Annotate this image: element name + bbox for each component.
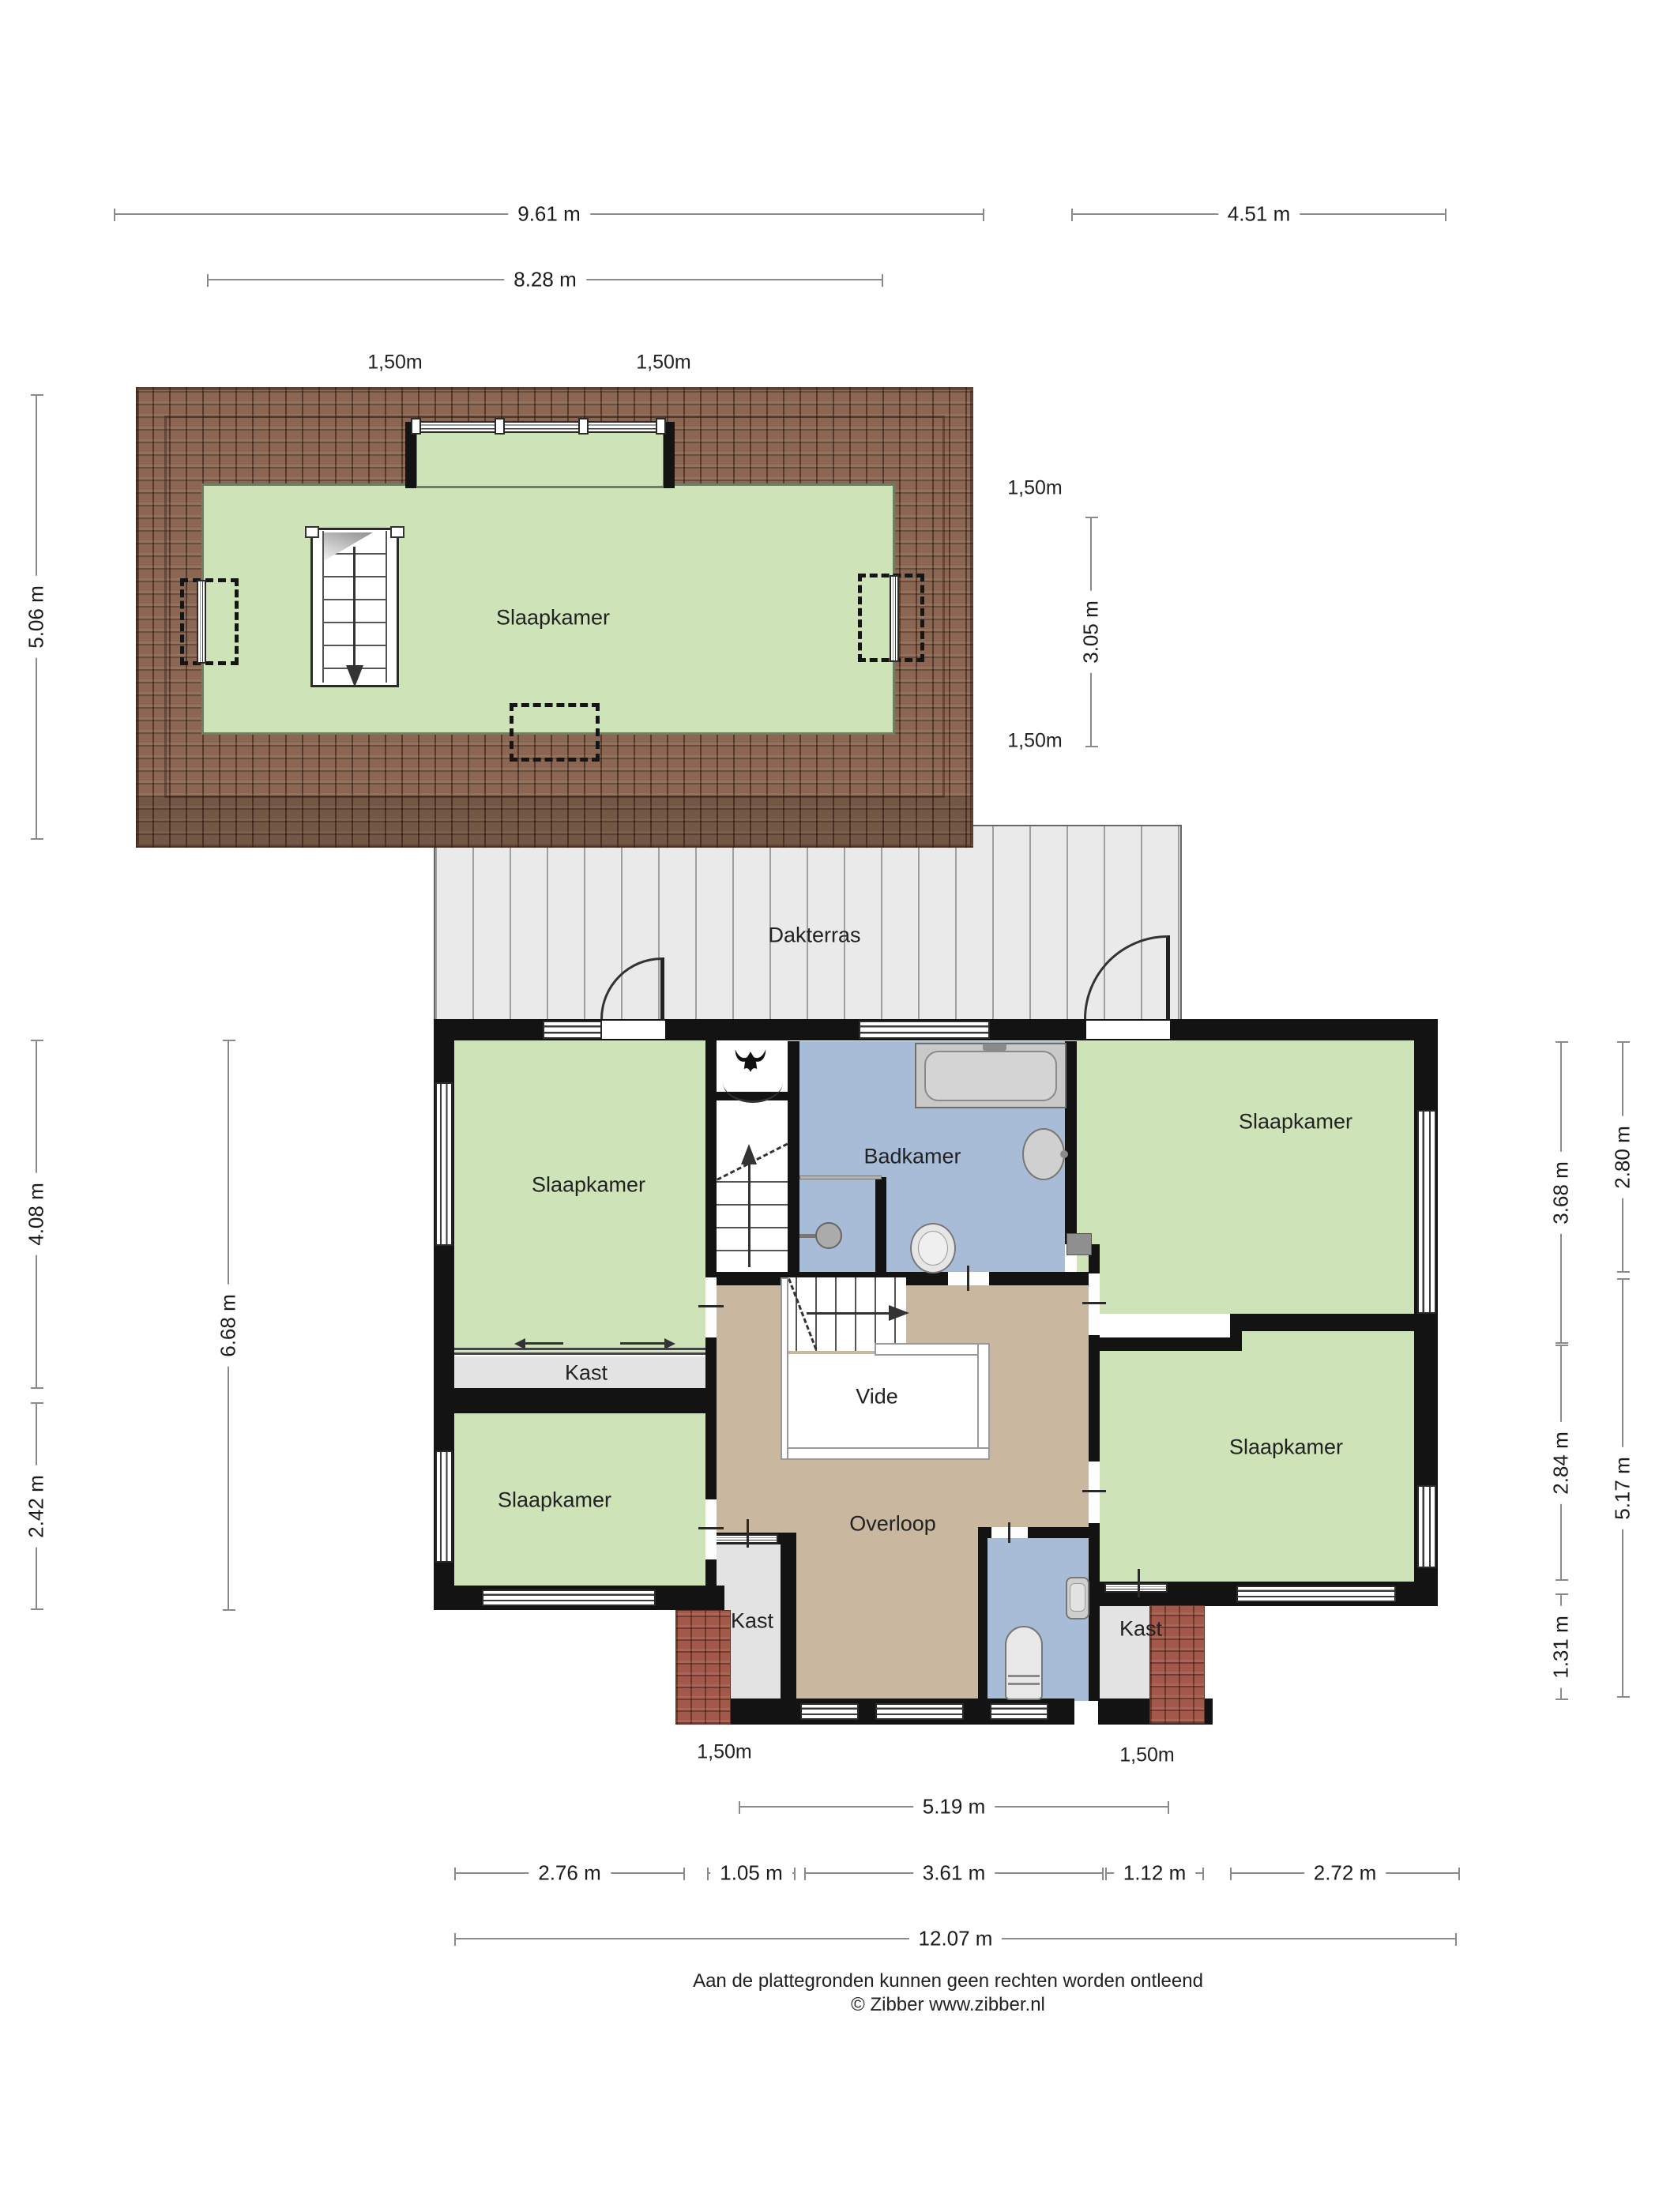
disclaimer-text: Aan de plattegronden kunnen geen rechten… — [693, 1970, 1203, 1992]
vide-kneewall-bottom — [781, 1447, 990, 1460]
wall-closet-bottom-right — [781, 1533, 796, 1725]
dim-label: 3.61 m — [913, 1861, 995, 1886]
door-tick — [967, 1266, 969, 1291]
door-bedroom-bottom-left — [705, 1499, 717, 1559]
dim-label: 1.12 m — [1114, 1861, 1196, 1886]
height-marker-150: 1,50m — [367, 352, 422, 374]
sliding-door-track — [454, 1352, 705, 1355]
dim-floor-bottom-1: 2.76 m — [455, 1872, 684, 1874]
closet-right-tick — [1138, 1569, 1140, 1597]
window-top-left — [543, 1021, 602, 1039]
height-marker-150: 1,50m — [1007, 730, 1062, 753]
window-right-lower — [1417, 1485, 1436, 1568]
dim-label: 2.72 m — [1304, 1861, 1386, 1886]
dim-label: 9.61 m — [508, 202, 590, 227]
dim-label: 3.05 m — [1079, 591, 1104, 673]
landing-stairs-arrow-head — [889, 1305, 909, 1321]
door-tick — [1008, 1522, 1010, 1543]
dim-floor-bottom-2: 1.05 m — [708, 1872, 795, 1874]
dim-label: 2.84 m — [1549, 1422, 1574, 1504]
floorplan-page: 9.61 m 4.51 m 8.28 m 1,50m 1,50m 5.06 m … — [0, 0, 1659, 2212]
attic-roof-lower-band — [138, 796, 971, 845]
dormer-window — [413, 421, 665, 433]
stair-newel-right — [390, 526, 404, 538]
vide-kneewall-right — [977, 1343, 990, 1460]
dim-floor-bottom-4: 1.12 m — [1106, 1872, 1203, 1874]
vide-kneewall-left — [781, 1277, 788, 1460]
window-bottom-left-room — [482, 1589, 656, 1606]
wc-toilet-tank-line — [1008, 1683, 1040, 1685]
wall-between-right-bedrooms-jog — [1230, 1314, 1242, 1351]
dim-floor-right-lower: 1.31 m — [1560, 1594, 1562, 1699]
dim-label: 12.07 m — [909, 1927, 1003, 1951]
wall-left-corridor — [705, 1040, 717, 1701]
dim-label: 2.76 m — [529, 1861, 611, 1886]
copyright-text: © Zibber www.zibber.nl — [851, 1994, 1045, 2016]
dim-floor-right-outer-lower: 5.17 m — [1622, 1279, 1623, 1697]
window-bathroom-top — [859, 1021, 990, 1039]
vide-kneewall-top — [875, 1343, 990, 1356]
window-bottom-right-room — [1236, 1586, 1396, 1602]
window-mullion — [411, 418, 421, 434]
room-label-bedroom-bottom-left: Slaapkamer — [498, 1488, 611, 1513]
dim-label: 1.31 m — [1549, 1606, 1574, 1688]
attic-dormer-area — [415, 433, 665, 488]
dim-label: 6.68 m — [216, 1285, 241, 1367]
wall-closet-left-bottom — [454, 1388, 705, 1413]
dim-floor-left-total: 6.68 m — [228, 1040, 229, 1610]
dim-floor-right-middle: 2.84 m — [1560, 1345, 1562, 1580]
door-bedroom-top-right — [1089, 1273, 1100, 1335]
duct-shaft — [1066, 1233, 1092, 1255]
sliding-door-arrow-left-head — [514, 1338, 525, 1349]
height-marker-150: 1,50m — [636, 352, 690, 374]
room-label-closet-right: Kast — [1119, 1617, 1162, 1642]
dim-floor-bottom-5: 2.72 m — [1231, 1872, 1459, 1874]
sliding-door-arrow-right — [620, 1342, 664, 1345]
ventilation-unit-icon — [733, 1047, 768, 1078]
wc-sink-basin — [1070, 1583, 1085, 1612]
window-left-lower — [435, 1450, 453, 1563]
dim-floor-bottom-span: 5.19 m — [739, 1806, 1168, 1808]
wall-stairwell-right — [788, 1041, 799, 1272]
bathroom-toilet-bowl-inner — [918, 1231, 948, 1266]
room-label-bedroom-top-left: Slaapkamer — [532, 1173, 645, 1198]
window-bottom-a — [800, 1703, 859, 1720]
dim-label: 2.80 m — [1611, 1116, 1635, 1198]
bedroom-top-right — [1077, 1040, 1414, 1314]
wc-toilet-tank-line — [1008, 1675, 1040, 1677]
stair-direction-arrow-shaft — [353, 547, 355, 667]
bathtub-faucet — [983, 1044, 1006, 1051]
dim-label: 4.08 m — [24, 1173, 49, 1255]
height-marker-150: 1,50m — [1119, 1744, 1174, 1767]
room-label-bathroom: Badkamer — [863, 1145, 961, 1169]
dim-label: 8.28 m — [504, 268, 586, 292]
sliding-door-arrow-left — [519, 1342, 563, 1345]
terrace-door-left-opening — [602, 1021, 665, 1039]
shower-head — [815, 1222, 842, 1249]
wc-toilet — [1005, 1626, 1043, 1700]
door-bedroom-bottom-right — [1089, 1461, 1100, 1523]
room-label-closet-left: Kast — [565, 1361, 608, 1386]
dim-label: 2.42 m — [24, 1465, 49, 1548]
room-label-attic: Slaapkamer — [496, 606, 610, 630]
dim-attic-height-left: 5.06 m — [36, 395, 37, 839]
dim-label: 5.19 m — [913, 1795, 995, 1819]
dim-attic-inner-width: 8.28 m — [208, 279, 882, 280]
bedroom-top-left — [454, 1040, 705, 1355]
bathroom-sink-faucet — [1060, 1150, 1068, 1158]
window-mullion — [656, 418, 666, 434]
terrace-door-right-opening — [1086, 1021, 1170, 1039]
room-label-vide: Vide — [856, 1385, 898, 1409]
dim-floor-bottom-total: 12.07 m — [455, 1938, 1456, 1939]
stairwell-arrow-head — [741, 1144, 757, 1164]
bathroom-sink — [1022, 1128, 1065, 1180]
closet-bottom-tick — [747, 1519, 749, 1548]
dim-upper-right-width: 4.51 m — [1072, 213, 1446, 215]
stairwell-arrow-shaft — [748, 1163, 750, 1267]
wall-closet-right-top — [1183, 1582, 1235, 1606]
window-closet-right-top — [1104, 1583, 1168, 1593]
window-left-upper — [435, 1082, 453, 1246]
wall-wc-left — [978, 1527, 987, 1701]
dim-floor-bottom-3: 3.61 m — [805, 1872, 1103, 1874]
dim-floor-left-upper: 4.08 m — [36, 1040, 37, 1388]
stair-direction-arrow-head — [346, 665, 363, 687]
stairwell-treads — [717, 1181, 788, 1272]
sliding-door-arrow-right-head — [664, 1338, 675, 1349]
bedroom-bottom-right-b — [1100, 1351, 1232, 1582]
attic-roof-window-left — [197, 580, 206, 664]
bathtub-inner — [924, 1051, 1057, 1101]
door-tick — [1082, 1302, 1106, 1304]
room-label-dakterras: Dakterras — [768, 924, 860, 948]
stair-stringer-right — [386, 531, 387, 683]
wall-between-right-bedrooms-a — [1230, 1314, 1414, 1331]
room-label-overloop: Overloop — [849, 1512, 936, 1537]
dim-label: 1.05 m — [710, 1861, 792, 1886]
window-bottom-b — [875, 1703, 964, 1720]
door-tick — [698, 1527, 724, 1529]
room-label-bedroom-bottom-right: Slaapkamer — [1229, 1435, 1343, 1460]
attic-roof-window-right — [890, 575, 899, 662]
daylight-zone-bottom — [510, 703, 600, 762]
height-marker-150: 1,50m — [1007, 477, 1062, 500]
dim-floor-right-outer-upper: 2.80 m — [1622, 1042, 1623, 1272]
dim-label: 4.51 m — [1218, 202, 1300, 227]
daylight-zone-left — [180, 578, 239, 665]
dim-label: 5.17 m — [1611, 1447, 1635, 1529]
wall-between-right-bedrooms-b — [1100, 1337, 1230, 1351]
room-label-closet-bottom: Kast — [731, 1609, 773, 1634]
dim-attic-total-width: 9.61 m — [115, 213, 984, 215]
door-bedroom-top-left — [705, 1277, 717, 1337]
door-tick — [1082, 1490, 1106, 1492]
dim-attic-height-right: 3.05 m — [1090, 517, 1092, 747]
shower-wall-stub — [875, 1177, 886, 1272]
landing-stairs-arrow-shaft — [807, 1312, 889, 1315]
wall-bathroom-right — [1065, 1041, 1077, 1244]
dim-floor-right-upper: 3.68 m — [1560, 1042, 1562, 1343]
dim-label: 3.68 m — [1549, 1152, 1574, 1234]
window-right-upper — [1417, 1110, 1436, 1314]
window-wc — [990, 1703, 1048, 1720]
window-mullion — [578, 418, 589, 434]
dim-floor-left-lower: 2.42 m — [36, 1403, 37, 1609]
shower-glass — [799, 1176, 882, 1179]
room-label-bedroom-top-right: Slaapkamer — [1239, 1110, 1352, 1134]
stair-newel-left — [305, 526, 319, 538]
door-tick — [698, 1305, 724, 1307]
lower-roof-patch-left — [675, 1610, 731, 1725]
dim-label: 5.06 m — [24, 576, 49, 658]
window-mullion — [495, 418, 505, 434]
height-marker-150: 1,50m — [697, 1741, 751, 1764]
